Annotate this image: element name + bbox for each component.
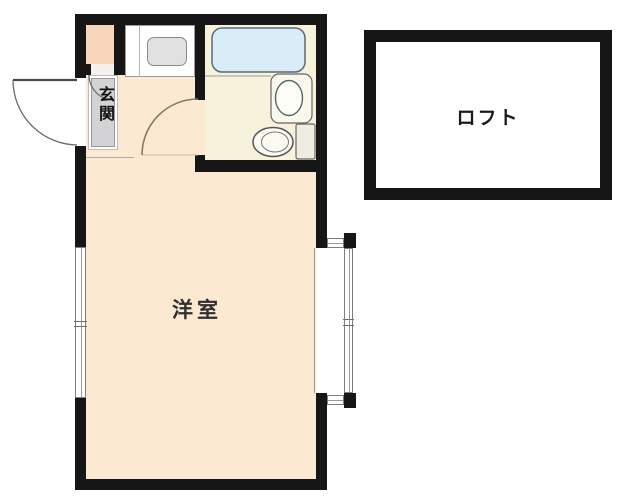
bathtub: [212, 28, 305, 72]
loft-label: ロフト: [428, 103, 548, 130]
entrance-door-arc: [13, 80, 77, 145]
floor-plan: 玄関 洋室 ロフト: [0, 0, 640, 500]
toilet-tank: [296, 124, 315, 159]
fixtures-overlay: [0, 0, 640, 500]
main-room-label: 洋室: [157, 294, 237, 324]
washbasin: [276, 81, 303, 116]
entrance-label: 玄関: [94, 86, 114, 124]
room-door-arc: [142, 99, 198, 155]
